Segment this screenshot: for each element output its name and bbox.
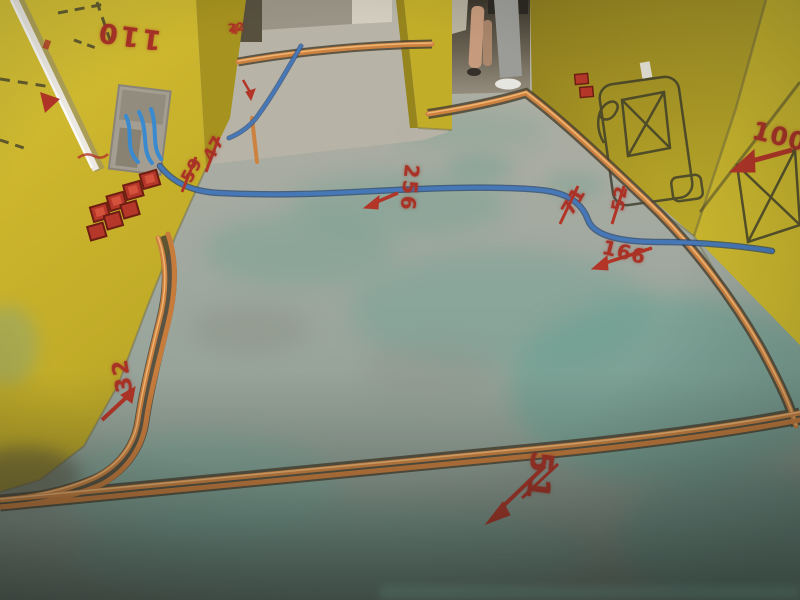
photo-canvas: 110 59 47 22 256 71 52 166 100 51 32 (0, 0, 800, 600)
bright-doorway-strip (352, 0, 392, 24)
doorway (452, 0, 530, 94)
scene-svg (0, 0, 800, 600)
person-bare-leg-2 (483, 20, 492, 66)
right-wall-green-smudge (446, 154, 514, 182)
bottom-light-band (380, 586, 800, 600)
person-dark-shoe (467, 68, 481, 76)
doorway-light (452, 0, 468, 34)
person-white-shoe (495, 79, 521, 90)
